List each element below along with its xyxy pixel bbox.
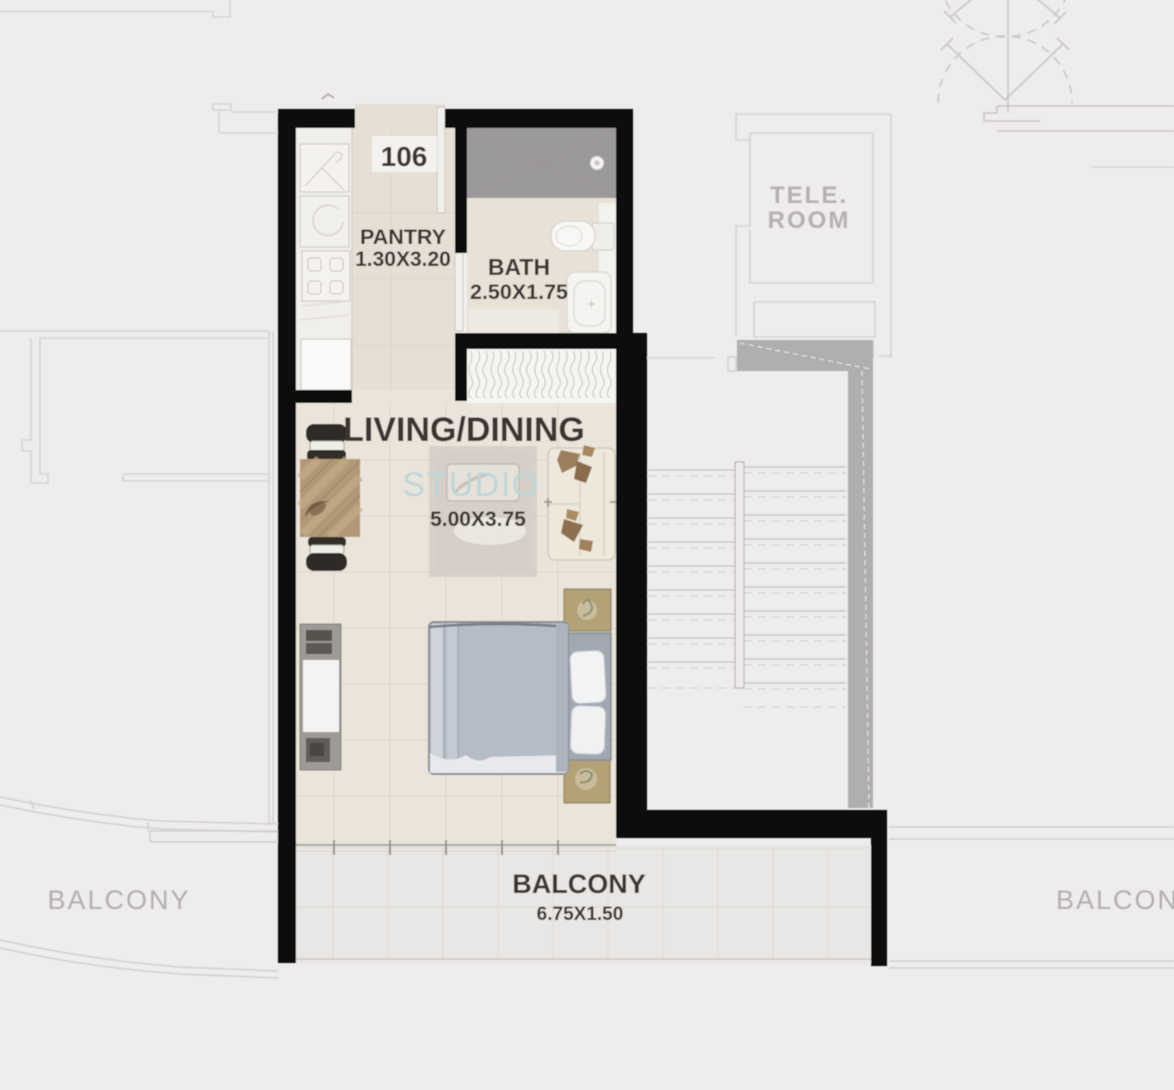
svg-text:106: 106 xyxy=(381,141,428,172)
svg-text:2.50X1.75: 2.50X1.75 xyxy=(470,280,568,304)
svg-text:5.00X3.75: 5.00X3.75 xyxy=(430,508,526,531)
svg-text:6.75X1.50: 6.75X1.50 xyxy=(537,904,624,925)
svg-text:ROOM: ROOM xyxy=(768,207,851,234)
svg-text:BALCONY: BALCONY xyxy=(1056,885,1174,915)
svg-text:PANTRY: PANTRY xyxy=(360,225,446,249)
svg-text:1.30X3.20: 1.30X3.20 xyxy=(355,248,451,271)
svg-text:BATH: BATH xyxy=(488,254,550,280)
svg-text:LIVING/DINING: LIVING/DINING xyxy=(343,411,585,449)
svg-text:TELE.: TELE. xyxy=(770,182,848,209)
svg-text:BALCONY: BALCONY xyxy=(47,885,190,915)
svg-text:STUDIO: STUDIO xyxy=(402,466,539,504)
svg-text:BALCONY: BALCONY xyxy=(512,869,646,899)
